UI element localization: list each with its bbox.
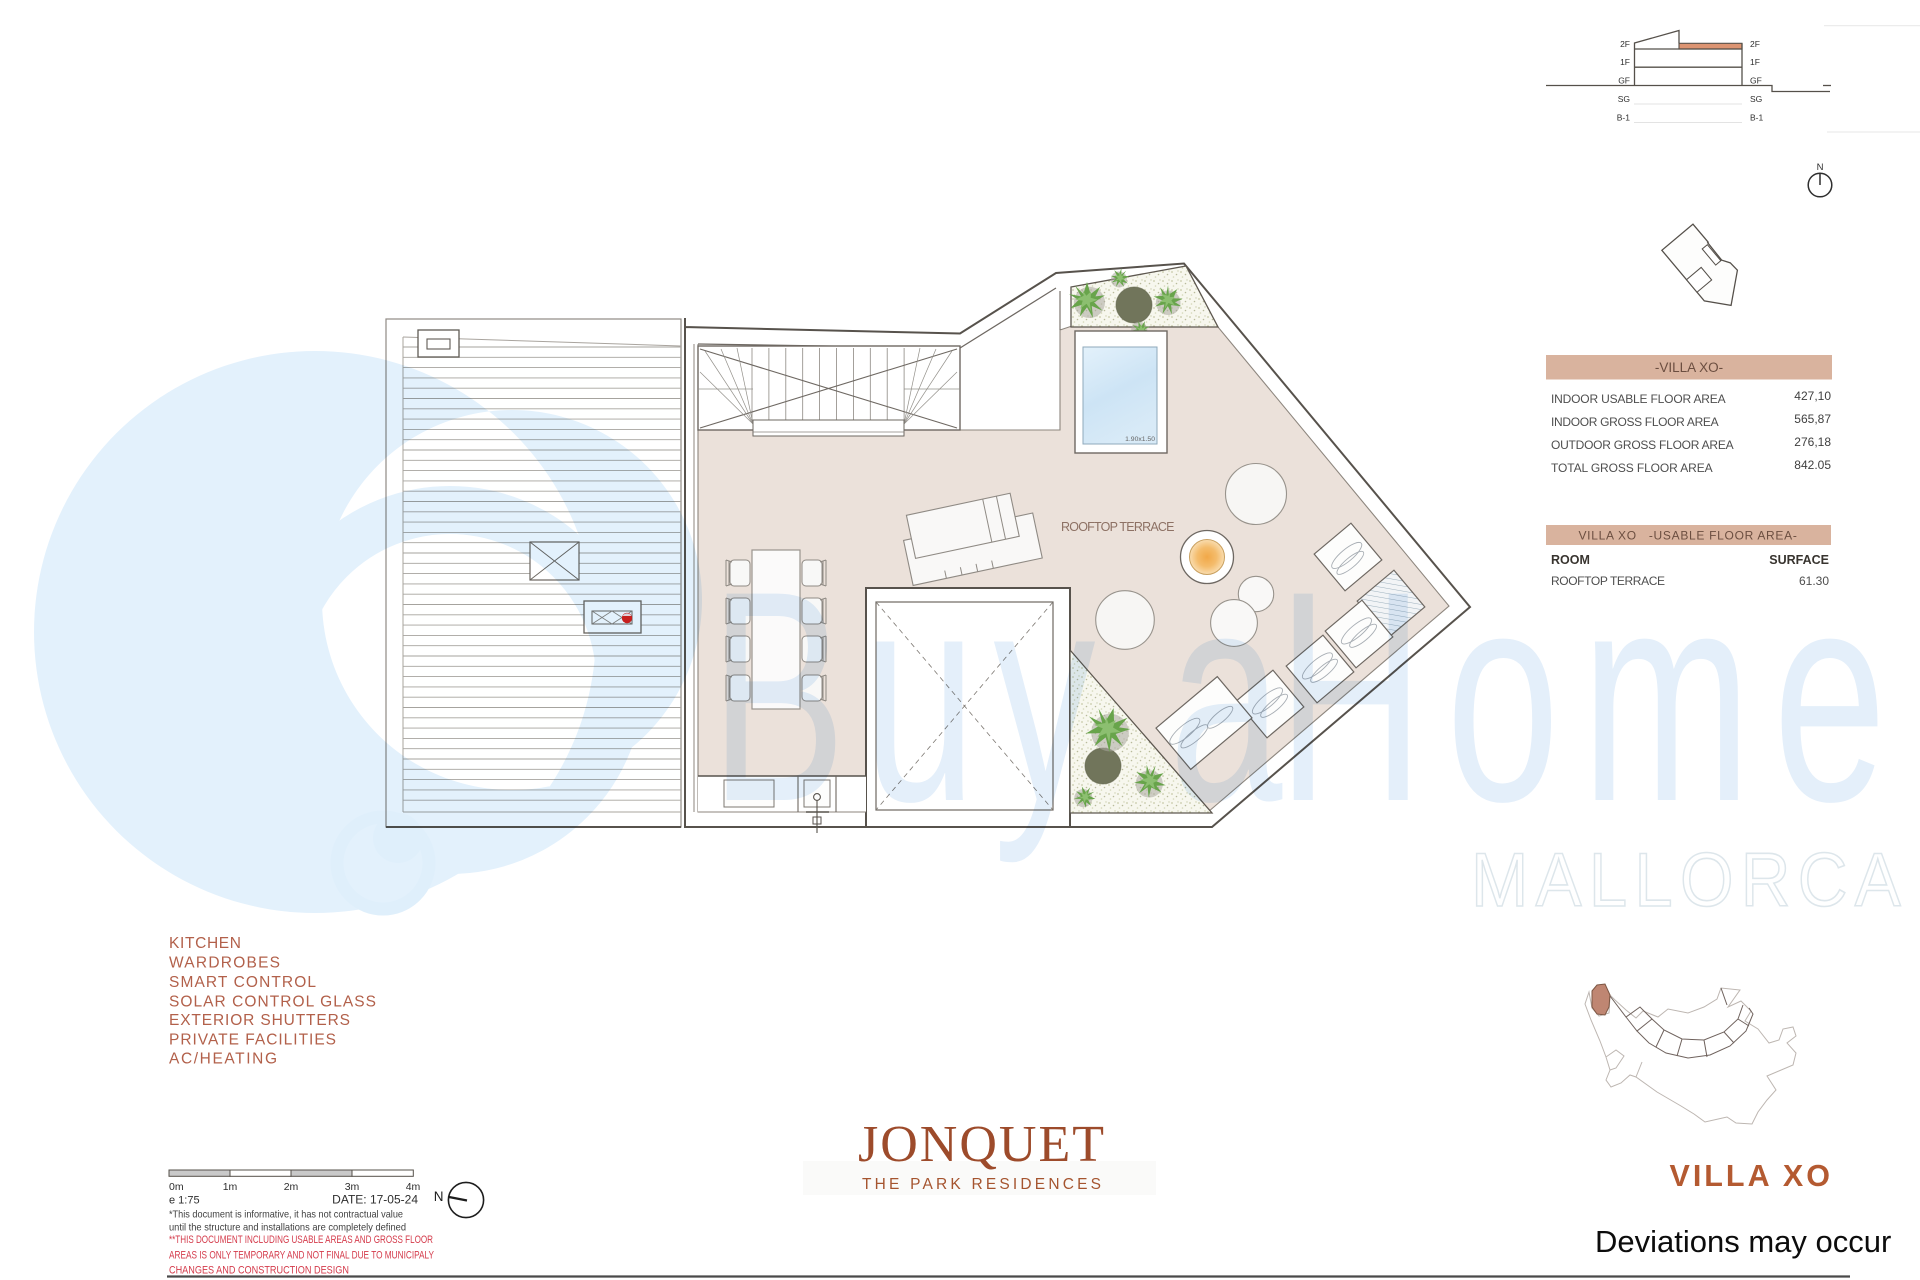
svg-text:N: N xyxy=(1817,162,1824,173)
svg-text:1.90x1.50: 1.90x1.50 xyxy=(1125,436,1155,443)
svg-text:842.05: 842.05 xyxy=(1794,458,1831,472)
svg-text:3m: 3m xyxy=(345,1181,360,1193)
svg-text:THE PARK RESIDENCES: THE PARK RESIDENCES xyxy=(862,1176,1104,1193)
svg-text:4m: 4m xyxy=(406,1181,421,1193)
svg-text:SURFACE: SURFACE xyxy=(1769,553,1829,567)
svg-text:ROOM: ROOM xyxy=(1551,553,1590,567)
svg-text:Buy: Buy xyxy=(710,530,1113,866)
svg-text:565,87: 565,87 xyxy=(1794,412,1831,426)
svg-text:1m: 1m xyxy=(223,1181,238,1193)
svg-text:1F: 1F xyxy=(1750,57,1760,67)
svg-text:e 1:75: e 1:75 xyxy=(169,1195,200,1207)
svg-text:EXTERIOR SHUTTERS: EXTERIOR SHUTTERS xyxy=(169,1012,350,1029)
svg-text:DATE: 17-05-24: DATE: 17-05-24 xyxy=(332,1193,418,1207)
svg-text:SMART CONTROL: SMART CONTROL xyxy=(169,974,316,991)
svg-text:B-1: B-1 xyxy=(1617,113,1631,123)
svg-text:SOLAR CONTROL GLASS: SOLAR CONTROL GLASS xyxy=(169,994,376,1011)
svg-text:AREAS IS ONLY TEMPORARY AND NO: AREAS IS ONLY TEMPORARY AND NOT FINAL DU… xyxy=(169,1250,434,1262)
svg-text:N: N xyxy=(434,1189,444,1204)
svg-text:427,10: 427,10 xyxy=(1794,389,1831,403)
svg-text:PRIVATE FACILITIES: PRIVATE FACILITIES xyxy=(169,1032,336,1049)
svg-text:**THIS DOCUMENT INCLUDING USAB: **THIS DOCUMENT INCLUDING USABLE AREAS A… xyxy=(169,1234,433,1246)
svg-text:ROOFTOP TERRACE: ROOFTOP TERRACE xyxy=(1551,574,1665,588)
svg-text:JONQUET: JONQUET xyxy=(858,1116,1108,1173)
svg-text:CHANGES AND CONSTRUCTION DESIG: CHANGES AND CONSTRUCTION DESIGN xyxy=(169,1265,349,1277)
svg-text:SG: SG xyxy=(1618,94,1630,104)
svg-text:SG: SG xyxy=(1750,94,1762,104)
svg-text:2m: 2m xyxy=(284,1181,299,1193)
svg-text:*This document is informative,: *This document is informative, it has no… xyxy=(169,1209,403,1221)
svg-text:OUTDOOR GROSS FLOOR AREA: OUTDOOR GROSS FLOOR AREA xyxy=(1551,438,1734,452)
svg-text:276,18: 276,18 xyxy=(1794,435,1831,449)
svg-text:INDOOR GROSS FLOOR AREA: INDOOR GROSS FLOOR AREA xyxy=(1551,415,1719,429)
svg-text:Deviations may occur: Deviations may occur xyxy=(1595,1224,1891,1259)
svg-text:a: a xyxy=(1169,530,1284,864)
svg-text:1F: 1F xyxy=(1620,57,1630,67)
svg-text:INDOOR USABLE FLOOR AREA: INDOOR USABLE FLOOR AREA xyxy=(1551,392,1726,406)
svg-text:61.30: 61.30 xyxy=(1799,574,1829,588)
svg-text:B-1: B-1 xyxy=(1750,113,1764,123)
svg-text:MALLORCA: MALLORCA xyxy=(1471,838,1908,923)
svg-text:GF: GF xyxy=(1618,76,1630,86)
svg-text:0m: 0m xyxy=(169,1181,184,1193)
svg-text:2F: 2F xyxy=(1620,39,1630,49)
svg-text:2F: 2F xyxy=(1750,39,1760,49)
svg-text:TOTAL GROSS FLOOR AREA: TOTAL GROSS FLOOR AREA xyxy=(1551,461,1713,475)
svg-text:GF: GF xyxy=(1750,76,1762,86)
svg-text:until the structure and instal: until the structure and installations ar… xyxy=(169,1222,406,1234)
svg-text:VILLA XO: VILLA XO xyxy=(1669,1159,1833,1193)
svg-text:VILLA XO -USABLE FLOOR AREA-: VILLA XO -USABLE FLOOR AREA- xyxy=(1578,529,1797,543)
svg-text:KITCHEN: KITCHEN xyxy=(169,935,241,952)
svg-text:-VILLA XO-: -VILLA XO- xyxy=(1655,360,1723,375)
svg-text:WARDROBES: WARDROBES xyxy=(169,955,280,972)
